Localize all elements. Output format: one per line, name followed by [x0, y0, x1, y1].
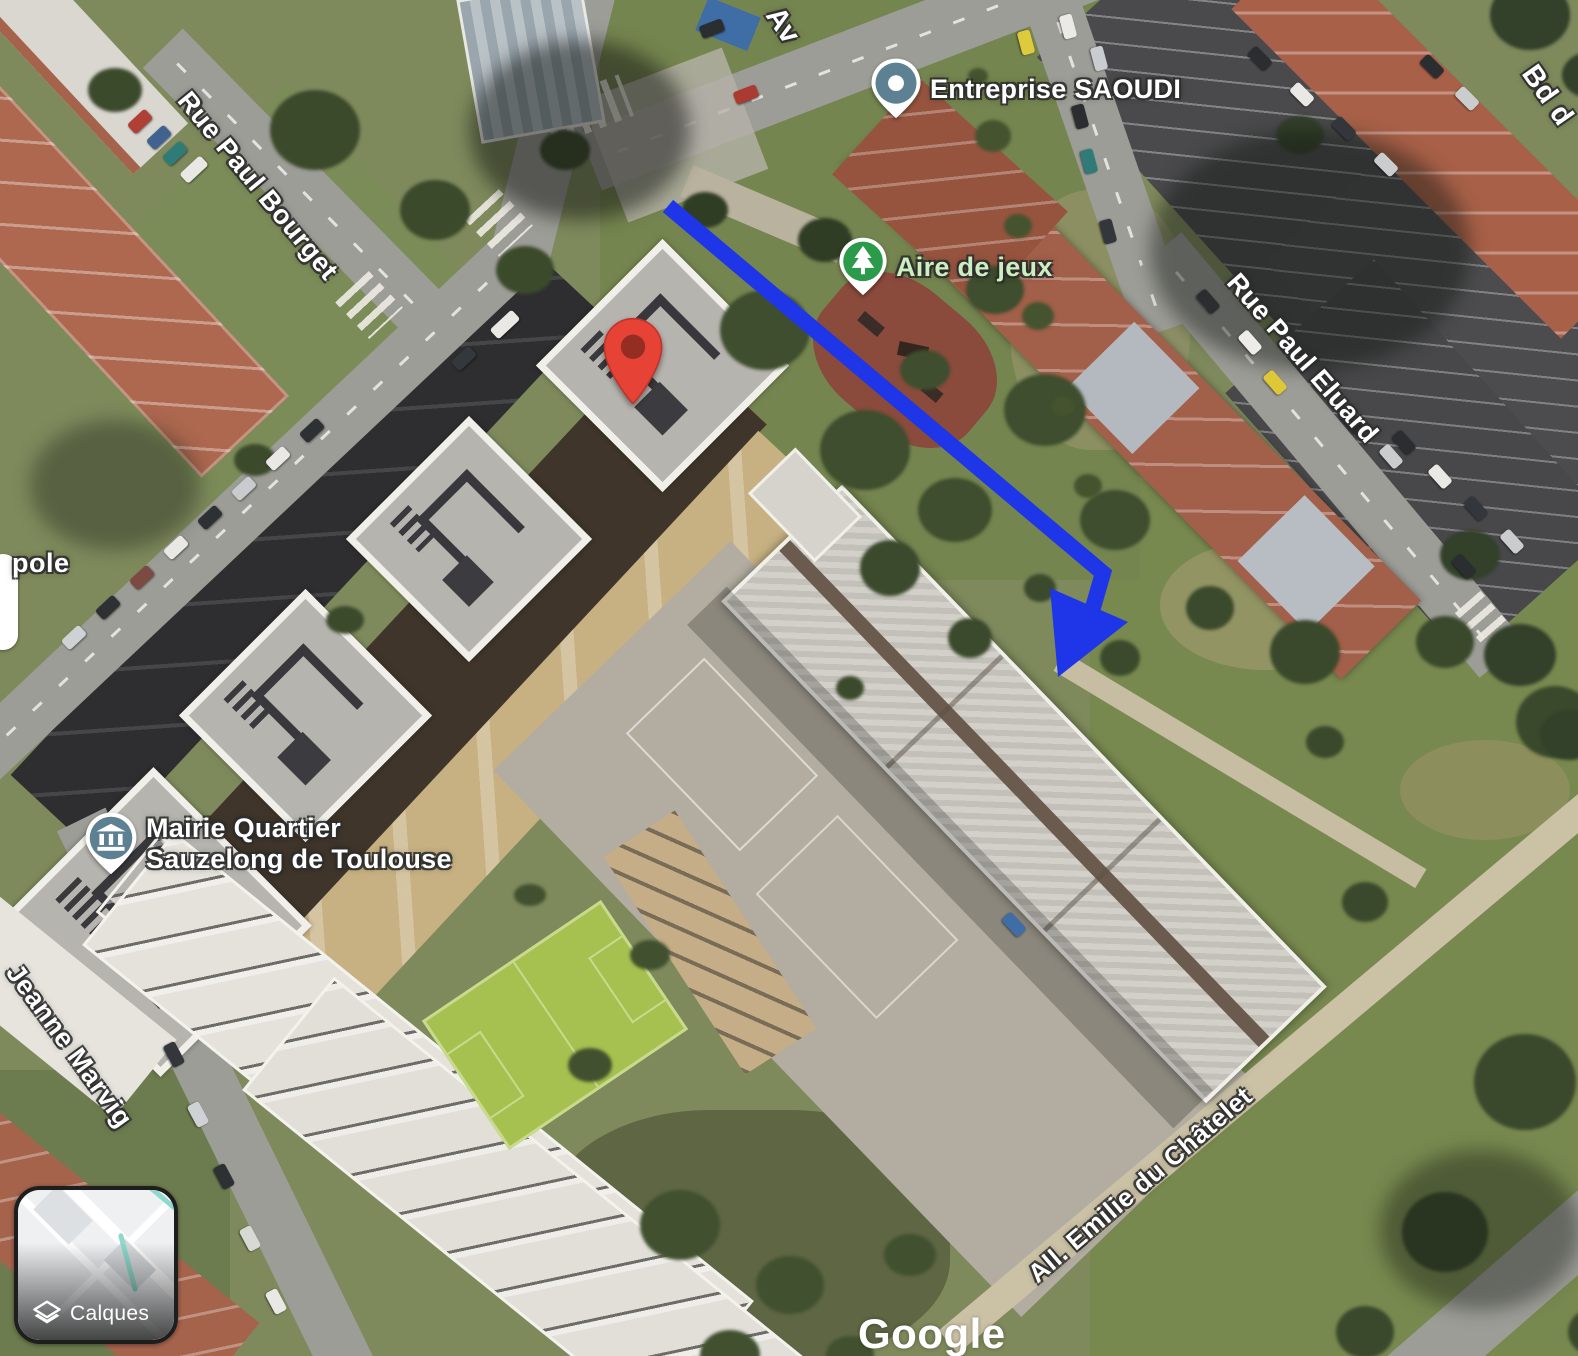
- tree-shadow: [470, 40, 690, 220]
- street-label-boulevard-partial: Bd d: [1514, 59, 1578, 132]
- tree-shadow: [1380, 1150, 1578, 1310]
- tree-shadow: [1150, 130, 1470, 370]
- tree-cluster: [1270, 620, 1340, 684]
- tree-cluster: [640, 1190, 720, 1260]
- tree-cluster: [720, 290, 810, 370]
- poi-aire-de-jeux[interactable]: Aire de jeux: [836, 235, 1053, 299]
- pitch-box: [588, 935, 665, 1023]
- town-hall-pin-icon: [82, 810, 140, 878]
- tree-shadow: [30, 420, 200, 550]
- poi-entreprise-saoudi[interactable]: Entreprise SAOUDI: [868, 56, 1181, 122]
- poi-label-line2: Sauzelong de Toulouse: [146, 844, 452, 875]
- poi-label-text: Mairie Quartier Sauzelong de Toulouse: [146, 813, 452, 875]
- bush-row: [975, 120, 1011, 152]
- layers-button[interactable]: Calques: [14, 1186, 178, 1344]
- pitch-halfway-line: [513, 962, 599, 1087]
- tree-pin-icon: [836, 235, 890, 299]
- poi-label-line1: Mairie Quartier: [146, 813, 452, 844]
- poi-mairie-sauzelong[interactable]: Mairie Quartier Sauzelong de Toulouse: [82, 810, 452, 878]
- tree-cluster: [860, 540, 920, 596]
- tree-cluster: [1490, 0, 1570, 50]
- satellite-map-canvas[interactable]: Rue Paul Bourget Rue Paul Eluard Jeanne …: [0, 0, 1578, 1356]
- poi-label-text: Aire de jeux: [896, 252, 1053, 283]
- place-pin-icon: [868, 56, 924, 122]
- street-label-left-edge-partial: pole: [12, 548, 70, 579]
- poi-label-text: Entreprise SAOUDI: [930, 74, 1181, 105]
- google-watermark: Google: [858, 1310, 1006, 1356]
- tree-cluster: [270, 90, 360, 170]
- layers-icon: [32, 1298, 62, 1328]
- car: [162, 141, 188, 167]
- layers-button-label: Calques: [70, 1302, 149, 1326]
